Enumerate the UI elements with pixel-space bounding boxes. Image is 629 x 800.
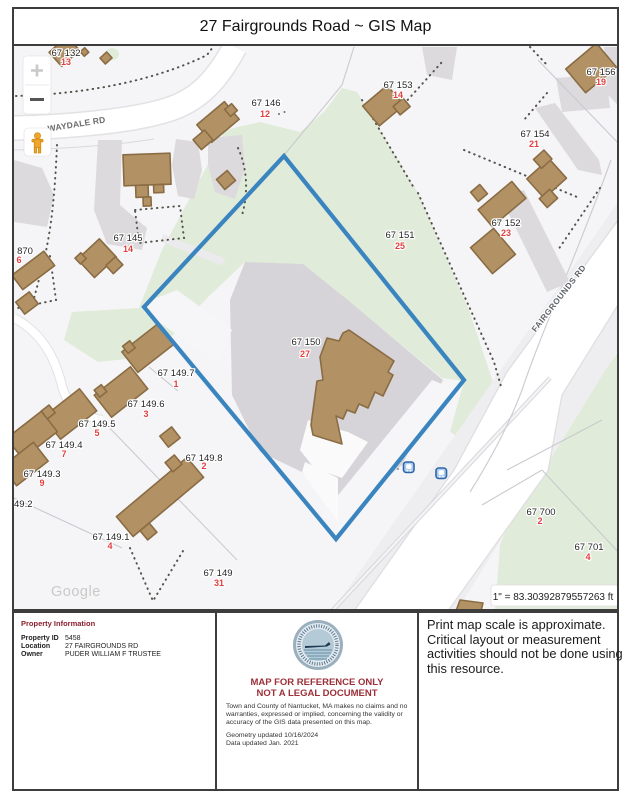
svg-text:1: 1: [173, 379, 178, 389]
svg-text:67 150: 67 150: [291, 337, 320, 348]
svg-text:4: 4: [585, 552, 590, 562]
svg-text:6: 6: [16, 255, 21, 265]
svg-text:5: 5: [94, 428, 99, 438]
svg-text:67 151: 67 151: [385, 230, 414, 241]
svg-text:9: 9: [39, 478, 44, 488]
svg-text:12: 12: [260, 109, 270, 119]
svg-text:23: 23: [501, 228, 511, 238]
svg-text:1" = 83.30392879557263 ft: 1" = 83.30392879557263 ft: [493, 592, 614, 603]
svg-text:31: 31: [214, 578, 224, 588]
svg-text:21: 21: [529, 139, 539, 149]
svg-text:27: 27: [300, 349, 310, 359]
svg-text:67 146: 67 146: [251, 98, 280, 109]
svg-text:19: 19: [596, 77, 606, 87]
svg-text:3: 3: [143, 409, 148, 419]
svg-text:2: 2: [537, 516, 542, 526]
svg-text:14: 14: [393, 90, 403, 100]
svg-text:7: 7: [61, 449, 66, 459]
svg-text:25: 25: [395, 241, 405, 251]
svg-text:67 149.7: 67 149.7: [158, 368, 195, 379]
svg-text:13: 13: [61, 57, 71, 67]
svg-text:14: 14: [123, 244, 133, 254]
svg-text:67 145: 67 145: [113, 233, 142, 244]
svg-text:Google: Google: [51, 584, 101, 600]
svg-text:4: 4: [107, 541, 112, 551]
svg-text:2: 2: [201, 461, 206, 471]
svg-text:49.2: 49.2: [14, 499, 33, 510]
